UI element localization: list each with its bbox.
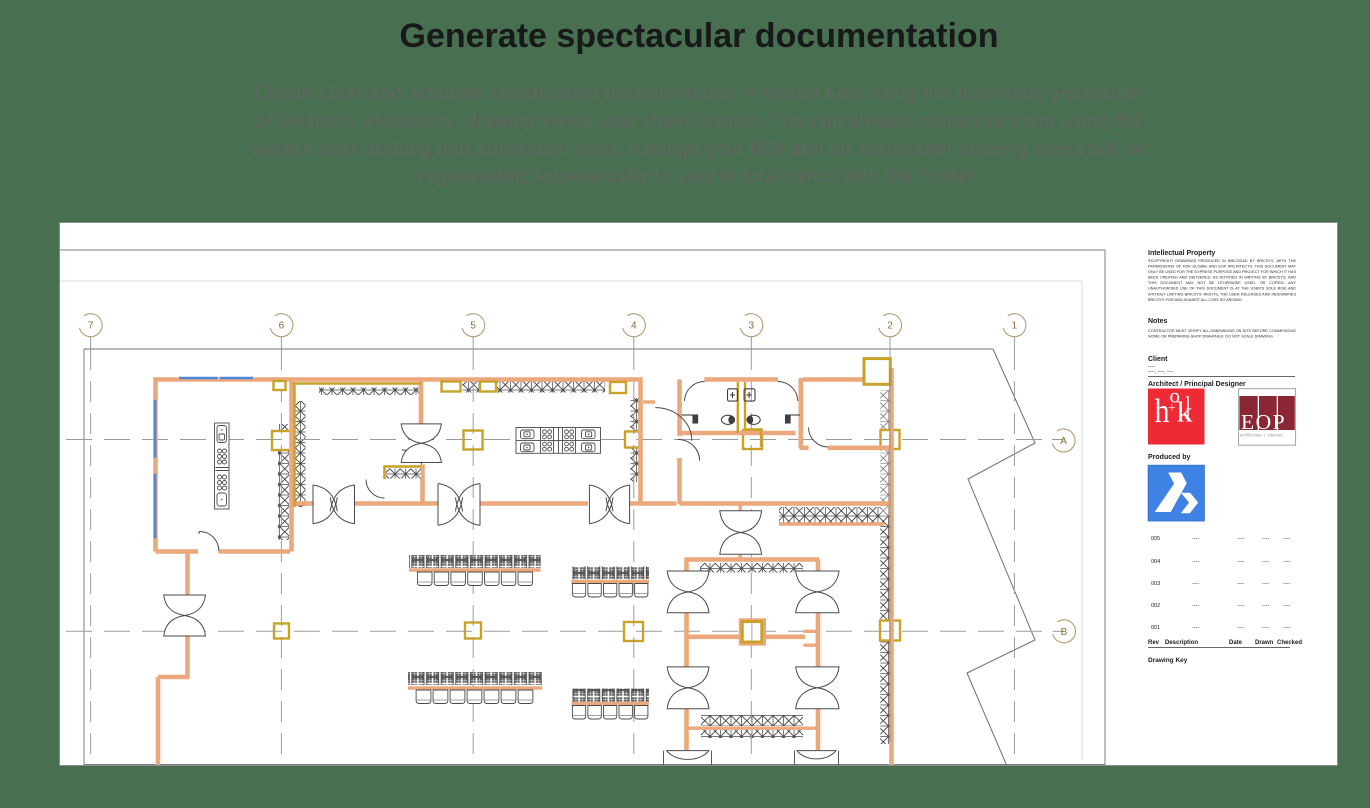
svg-text:Date: Date xyxy=(1229,640,1243,646)
svg-text:7: 7 xyxy=(88,321,94,332)
svg-text:Architect / Principal Designer: Architect / Principal Designer xyxy=(1148,381,1246,388)
svg-text:k: k xyxy=(1177,398,1193,429)
svg-text:Drawing Key: Drawing Key xyxy=(1148,657,1188,664)
svg-text:----: ---- xyxy=(1262,625,1269,631)
svg-text:----: ---- xyxy=(1237,581,1244,587)
svg-text:----: ---- xyxy=(1237,559,1244,565)
svg-text:A: A xyxy=(1060,436,1067,447)
svg-text:Rev: Rev xyxy=(1148,640,1160,646)
svg-text:----: ---- xyxy=(1283,625,1290,631)
svg-text:6: 6 xyxy=(279,321,285,332)
svg-text:----: ---- xyxy=(1192,559,1199,565)
svg-text:----: ---- xyxy=(1192,625,1199,631)
svg-text:----: ---- xyxy=(1262,603,1269,609)
svg-text:Intellectual Property: Intellectual Property xyxy=(1148,250,1215,257)
svg-text:Description: Description xyxy=(1165,640,1198,646)
svg-text:----: ---- xyxy=(1283,603,1290,609)
svg-text:005: 005 xyxy=(1151,536,1160,542)
svg-text:Drawn: Drawn xyxy=(1255,640,1274,646)
svg-text:----: ---- xyxy=(1262,581,1269,587)
svg-text:----: ---- xyxy=(1283,581,1290,587)
svg-text:004: 004 xyxy=(1151,559,1160,565)
svg-text:Produced by: Produced by xyxy=(1148,454,1191,461)
svg-text:2: 2 xyxy=(887,321,893,332)
svg-text:1: 1 xyxy=(1012,321,1018,332)
svg-text:----: ---- xyxy=(1262,536,1269,542)
svg-text:Notes: Notes xyxy=(1148,318,1168,325)
svg-text:3: 3 xyxy=(749,321,755,332)
svg-text:4: 4 xyxy=(631,321,637,332)
svg-text:----: ---- xyxy=(1283,536,1290,542)
svg-text:----: ---- xyxy=(1192,603,1199,609)
svg-text:5: 5 xyxy=(470,321,476,332)
svg-text:Checked: Checked xyxy=(1277,640,1302,646)
svg-text:----: ---- xyxy=(1237,603,1244,609)
svg-text:----: ---- xyxy=(1237,536,1244,542)
svg-text:----: ---- xyxy=(1283,559,1290,565)
svg-text:002: 002 xyxy=(1151,603,1160,609)
svg-text:architecture | interiors: architecture | interiors xyxy=(1240,433,1283,438)
svg-text:EOP: EOP xyxy=(1241,410,1286,434)
svg-text:B: B xyxy=(1061,627,1068,638)
svg-text:Client: Client xyxy=(1148,356,1168,363)
svg-text:+: + xyxy=(1168,400,1176,415)
svg-text:----: ---- xyxy=(1262,559,1269,565)
svg-text:----: ---- xyxy=(1192,536,1199,542)
svg-text:001: 001 xyxy=(1151,625,1160,631)
svg-text:----, ----, ----: ----, ----, ---- xyxy=(1148,369,1174,375)
svg-text:003: 003 xyxy=(1151,581,1160,587)
svg-text:----: ---- xyxy=(1237,625,1244,631)
svg-text:----: ---- xyxy=(1192,581,1199,587)
